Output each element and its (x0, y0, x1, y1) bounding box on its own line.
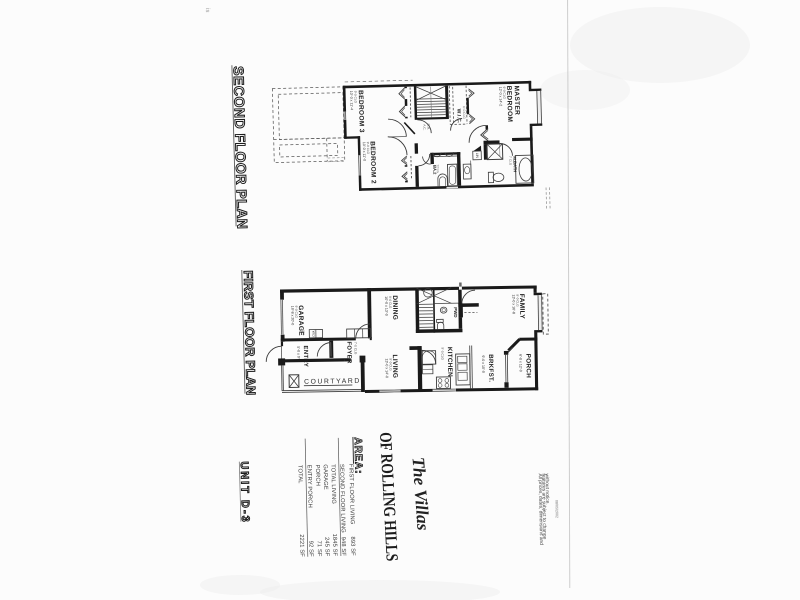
svg-text:9'-0 CLG: 9'-0 CLG (388, 296, 392, 309)
svg-text:9'-0 CLG: 9'-0 CLG (294, 306, 298, 319)
svg-text:19'-8 x 20'-0: 19'-8 x 20'-0 (290, 306, 294, 326)
svg-text:COURTYARD: COURTYARD (304, 378, 361, 386)
svg-text:9'-0 CLG: 9'-0 CLG (502, 87, 506, 100)
svg-text:TOTAL LIVING: TOTAL LIVING (329, 464, 336, 504)
svg-text:245 SF: 245 SF (323, 537, 329, 557)
svg-text:BRKFST.: BRKFST. (487, 354, 494, 382)
svg-text:92 SF: 92 SF (307, 541, 313, 557)
svg-text:71 SF: 71 SF (316, 541, 322, 557)
svg-text:LIN: LIN (475, 153, 479, 159)
svg-text:ENTRY: ENTRY (302, 345, 308, 367)
svg-text:A.C.: A.C. (422, 124, 426, 130)
svg-text:1845 SF: 1845 SF (331, 534, 338, 557)
svg-text:13'-0 x 16'-8: 13'-0 x 16'-8 (511, 294, 515, 314)
svg-text:KITCHEN: KITCHEN (446, 347, 453, 377)
svg-text:without notice.: without notice. (544, 473, 551, 504)
svg-text:PORCH: PORCH (314, 464, 320, 486)
svg-text:10'-0 x 11'-0: 10'-0 x 11'-0 (362, 142, 367, 161)
svg-text:W.D: W.D (311, 331, 315, 338)
svg-text:893 SF: 893 SF (349, 536, 355, 556)
svg-text:FOYER: FOYER (345, 341, 351, 364)
svg-text:GARAGE: GARAGE (322, 464, 329, 490)
svg-text:10'-0 x 13'-0: 10'-0 x 13'-0 (384, 296, 388, 316)
svg-text:5'-0 x 9'-0: 5'-0 x 9'-0 (296, 346, 300, 362)
svg-text:13'-0 x 14'-0: 13'-0 x 14'-0 (384, 358, 388, 378)
svg-text:9'-0 CLG: 9'-0 CLG (515, 294, 519, 307)
svg-text:MASTER: MASTER (513, 85, 521, 115)
svg-text:9'-0 CLG: 9'-0 CLG (388, 358, 392, 371)
svg-text:W.I.C.: W.I.C. (455, 109, 461, 124)
svg-text:9'-0 x 10'-0: 9'-0 x 10'-0 (481, 355, 485, 373)
svg-text:is: is (204, 8, 210, 13)
svg-text:9'-0 CLG: 9'-0 CLG (366, 142, 370, 155)
svg-text:7'CLG: 7'CLG (436, 164, 440, 173)
svg-text:6'-0 x 12'-0: 6'-0 x 12'-0 (518, 354, 522, 372)
svg-text:PWD: PWD (453, 307, 458, 317)
svg-text:9'-0 CLG: 9'-0 CLG (440, 347, 444, 360)
svg-text:9'-0 CLG: 9'-0 CLG (353, 91, 357, 104)
svg-text:12'-0 x 14'-2: 12'-0 x 14'-2 (498, 87, 503, 107)
svg-text:08/05/2002: 08/05/2002 (555, 500, 559, 518)
svg-text:6'-0 CLG: 6'-0 CLG (462, 106, 466, 119)
svg-text:7' CLG: 7' CLG (508, 156, 512, 166)
svg-text:7'-0 CLG: 7'-0 CLG (353, 342, 357, 355)
svg-text:PORCH: PORCH (524, 354, 531, 379)
svg-text:TOTAL: TOTAL (296, 465, 302, 484)
svg-text:2221 SF: 2221 SF (298, 534, 305, 557)
svg-text:10'-0 x 11'-4: 10'-0 x 11'-4 (349, 91, 354, 110)
